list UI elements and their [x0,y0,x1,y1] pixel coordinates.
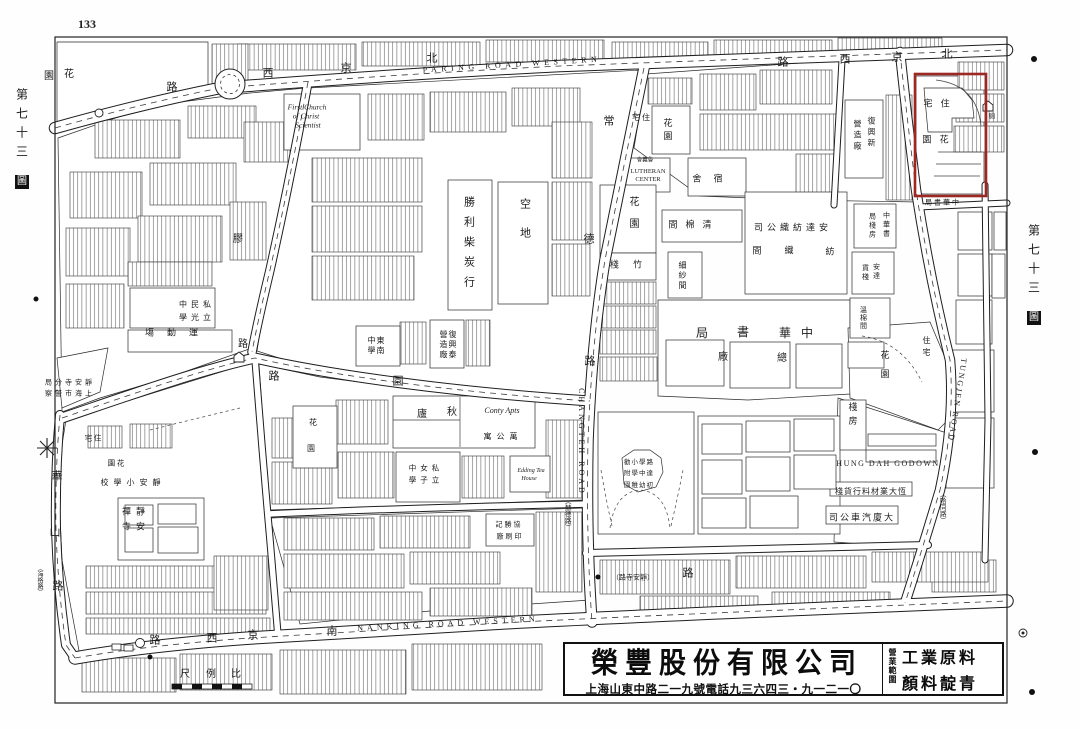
plate-number-left: 第七十三 圖 [13,88,31,189]
ad-scope-section: 營業範圍 工業原料 顏料靛青 [883,644,1002,694]
page-number: 133 [78,17,96,32]
advertisement-box: 榮豐股份有限公司 上海山東中路二一九號電話九三六四三・九一二一〇 營業範圍 工業… [563,642,1004,696]
ad-main-section: 榮豐股份有限公司 上海山東中路二一九號電話九三六四三・九一二一〇 [565,644,883,694]
plate-number-right: 第七十三 圖 [1025,224,1043,325]
ad-scope-item-1: 工業原料 [902,644,978,668]
ad-scope-label: 營業範圍 [887,648,898,690]
plate-right-text: 第七十三 [1026,224,1043,300]
scale-bar [172,684,252,689]
ad-scope-item-2: 顏料靛青 [902,670,978,694]
plate-right-boxed-char: 圖 [1027,311,1041,325]
plate-left-text: 第七十三 [14,88,31,164]
ad-company-name: 榮豐股份有限公司 [591,644,863,681]
temple-star-icon [37,438,57,458]
plate-left-boxed-char: 圖 [15,175,29,189]
ad-address-phone: 上海山東中路二一九號電話九三六四三・九一二一〇 [586,681,862,694]
map-drawing [0,0,1080,729]
atlas-page: PARING ROAD WESTERNNANKING ROAD WESTERNC… [0,0,1080,729]
